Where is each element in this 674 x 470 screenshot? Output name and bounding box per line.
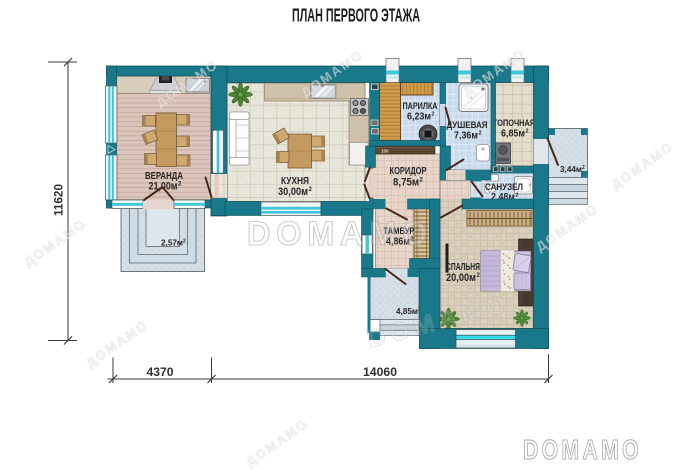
svg-text:ДУШЕВАЯ: ДУШЕВАЯ [447, 120, 488, 131]
svg-text:4370: 4370 [147, 367, 174, 379]
svg-text:ПЛАН ПЕРВОГО ЭТАЖА: ПЛАН ПЕРВОГО ЭТАЖА [292, 6, 420, 26]
svg-text:30,00м: 30,00м [278, 186, 308, 198]
svg-text:11620: 11620 [54, 184, 66, 216]
svg-text:2,57м: 2,57м [161, 239, 183, 248]
svg-text:14060: 14060 [363, 367, 397, 379]
svg-text:2: 2 [582, 165, 585, 171]
svg-text:КОРИДОР: КОРИДОР [390, 166, 427, 177]
svg-text:2: 2 [526, 129, 529, 135]
svg-text:7,36м: 7,36м [454, 131, 478, 142]
svg-text:3,44м: 3,44м [560, 165, 582, 174]
svg-text:2: 2 [516, 193, 519, 199]
svg-text:DOMAMO: DOMAMO [247, 215, 433, 253]
svg-text:ПАРИЛКА: ПАРИЛКА [403, 101, 438, 112]
svg-text:8,75м: 8,75м [393, 177, 419, 189]
svg-text:DOMAMO: DOMAMO [523, 434, 642, 465]
svg-text:20,00м: 20,00м [446, 272, 476, 284]
svg-text:6,85м: 6,85м [501, 129, 525, 140]
svg-text:150: 150 [381, 149, 389, 154]
svg-text:ТОПОЧНАЯ: ТОПОЧНАЯ [493, 118, 535, 129]
svg-text:6,23м: 6,23м [407, 112, 431, 123]
svg-text:2: 2 [432, 112, 435, 118]
svg-text:2: 2 [479, 131, 482, 137]
svg-text:2: 2 [183, 239, 186, 245]
